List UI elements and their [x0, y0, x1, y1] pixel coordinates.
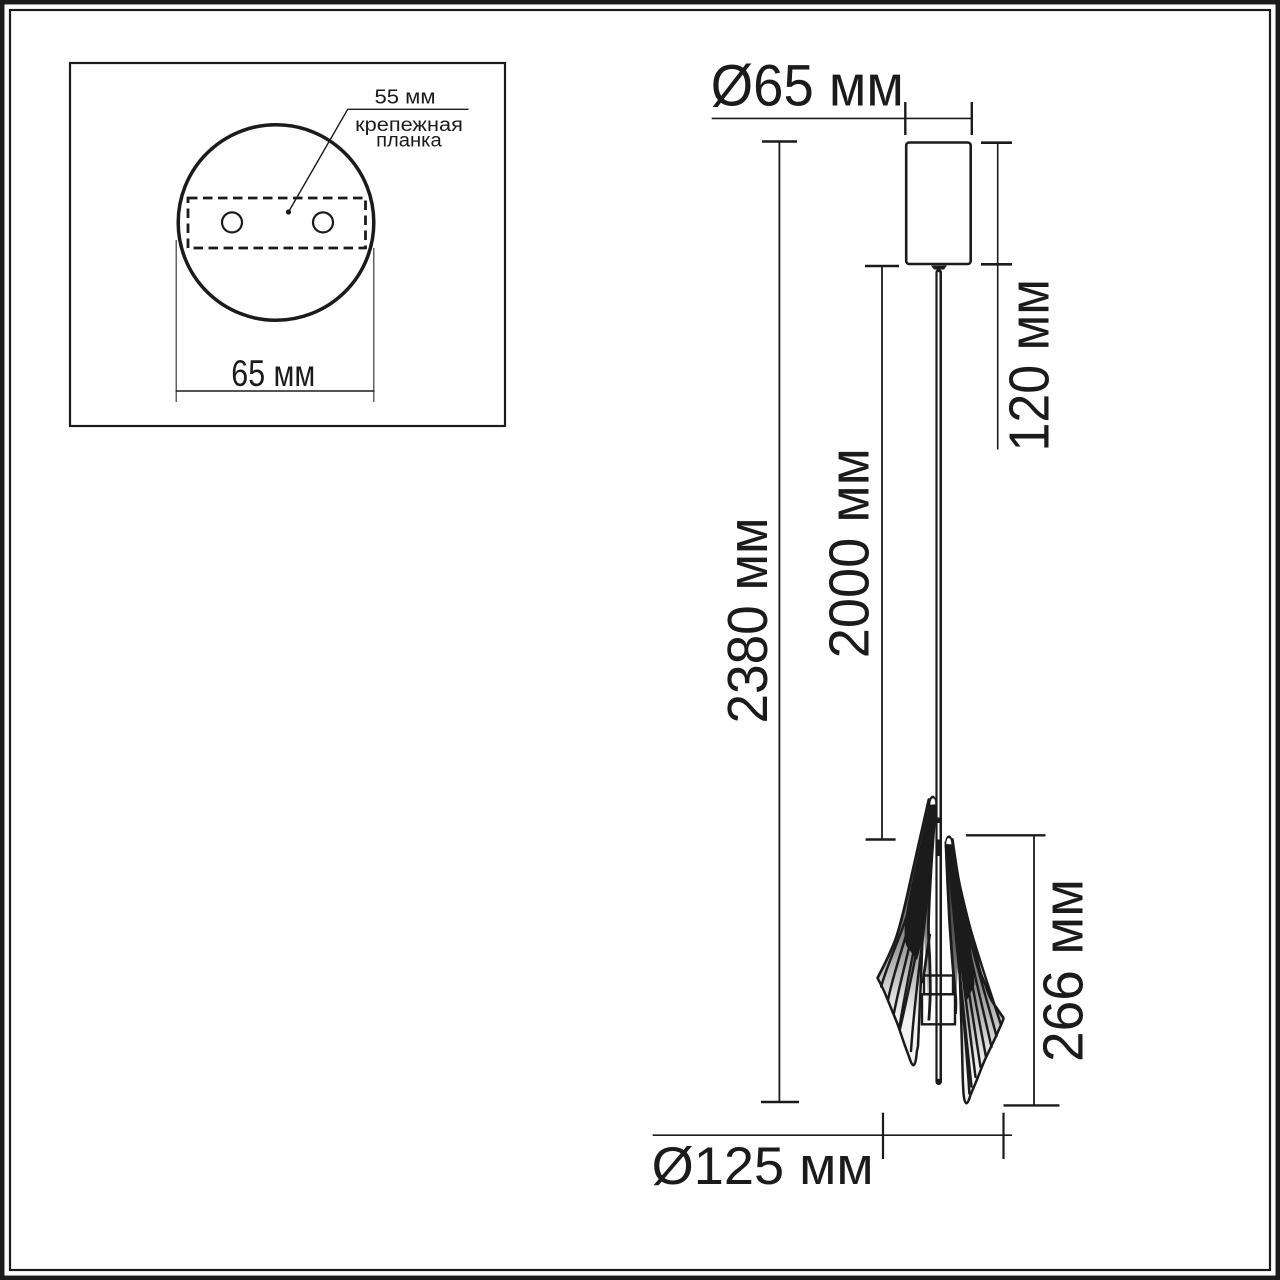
svg-text:2380 мм: 2380 мм: [716, 518, 780, 724]
svg-text:266 мм: 266 мм: [1032, 879, 1096, 1062]
svg-text:65 мм: 65 мм: [231, 353, 315, 394]
svg-text:2000 мм: 2000 мм: [818, 448, 882, 658]
svg-text:Ø125 мм: Ø125 мм: [652, 1137, 874, 1196]
svg-text:планка: планка: [376, 130, 442, 152]
svg-text:120 мм: 120 мм: [998, 279, 1062, 452]
svg-text:Ø65 мм: Ø65 мм: [711, 54, 904, 119]
svg-text:55 мм: 55 мм: [375, 87, 436, 109]
